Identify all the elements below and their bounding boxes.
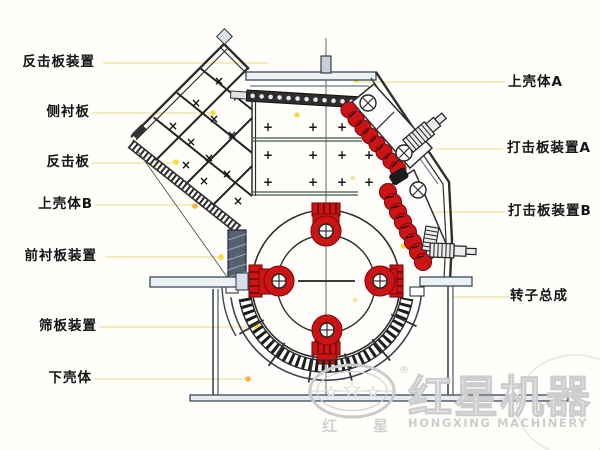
svg-text:×: × — [191, 96, 201, 110]
svg-text:×: × — [209, 112, 219, 126]
svg-text:+: + — [263, 120, 273, 134]
rotor-hammer-top — [311, 203, 341, 246]
svg-text:×: × — [233, 194, 243, 208]
label-lower-shell: 下壳体 — [49, 372, 93, 386]
left-bracket-bar — [150, 277, 240, 287]
svg-text:×: × — [199, 174, 209, 188]
label-impact-plate-device: 反击板装置 — [23, 56, 96, 70]
logo-char-left: 红 — [322, 417, 337, 435]
striking-plate-a — [341, 84, 449, 177]
star-icon: ★ — [343, 379, 360, 401]
label-impact-plate: 反击板 — [47, 156, 91, 170]
label-screen-plate-device: 筛板装置 — [39, 320, 97, 334]
label-side-liner: 侧衬板 — [47, 106, 91, 120]
svg-text:×: × — [222, 167, 232, 181]
apex-bracket — [217, 29, 233, 45]
label-rotor-assembly: 转子总成 — [510, 290, 568, 304]
feed-bolt — [321, 56, 331, 73]
leader-lines — [92, 63, 509, 379]
svg-text:×: × — [214, 74, 224, 88]
svg-text:+: + — [337, 120, 347, 134]
support-leg-left — [213, 289, 218, 396]
label-striking-plate-b: 打击板装置B — [508, 205, 592, 219]
label-front-liner-device: 前衬板装置 — [25, 250, 98, 264]
star-icon: ★ — [366, 383, 379, 401]
brand-name-en: HONGXING MACHINERY — [408, 416, 588, 430]
right-bracket-bar — [420, 277, 472, 286]
rotor-hammer-right — [365, 265, 403, 297]
svg-text:+: + — [308, 148, 318, 162]
svg-text:+: + — [364, 175, 374, 189]
label-upper-shell-a: 上壳体A — [508, 76, 563, 90]
svg-text:×: × — [227, 128, 237, 142]
machine-drawing: × × × × × × × × × × × × — [128, 29, 568, 401]
svg-text:+: + — [337, 175, 347, 189]
impact-plate-beam — [128, 140, 241, 233]
impact-crusher-structure-diagram: × × × × × × × × × × × × — [0, 0, 600, 450]
top-plate — [246, 72, 376, 80]
svg-text:+: + — [263, 175, 273, 189]
svg-text:×: × — [204, 151, 214, 165]
logo-char-right: 星 — [373, 417, 388, 435]
svg-text:×: × — [186, 135, 196, 149]
svg-text:+: + — [263, 148, 273, 162]
star-icon: ★ — [324, 383, 337, 401]
adjusting-bolt-b — [430, 243, 476, 259]
svg-text:+: + — [337, 148, 347, 162]
rotor-hammer-bottom — [312, 315, 342, 364]
front-liner-plate — [228, 230, 246, 277]
svg-text:×: × — [168, 119, 178, 133]
label-striking-plate-a: 打击板装置A — [507, 142, 591, 156]
svg-text:+: + — [308, 175, 318, 189]
svg-text:+: + — [308, 120, 318, 134]
rotor-hammer-left — [249, 265, 294, 297]
svg-text:×: × — [181, 158, 191, 172]
hopper-panel — [130, 29, 320, 238]
label-upper-shell-b: 上壳体B — [38, 198, 93, 212]
chain-curtain — [230, 89, 359, 108]
